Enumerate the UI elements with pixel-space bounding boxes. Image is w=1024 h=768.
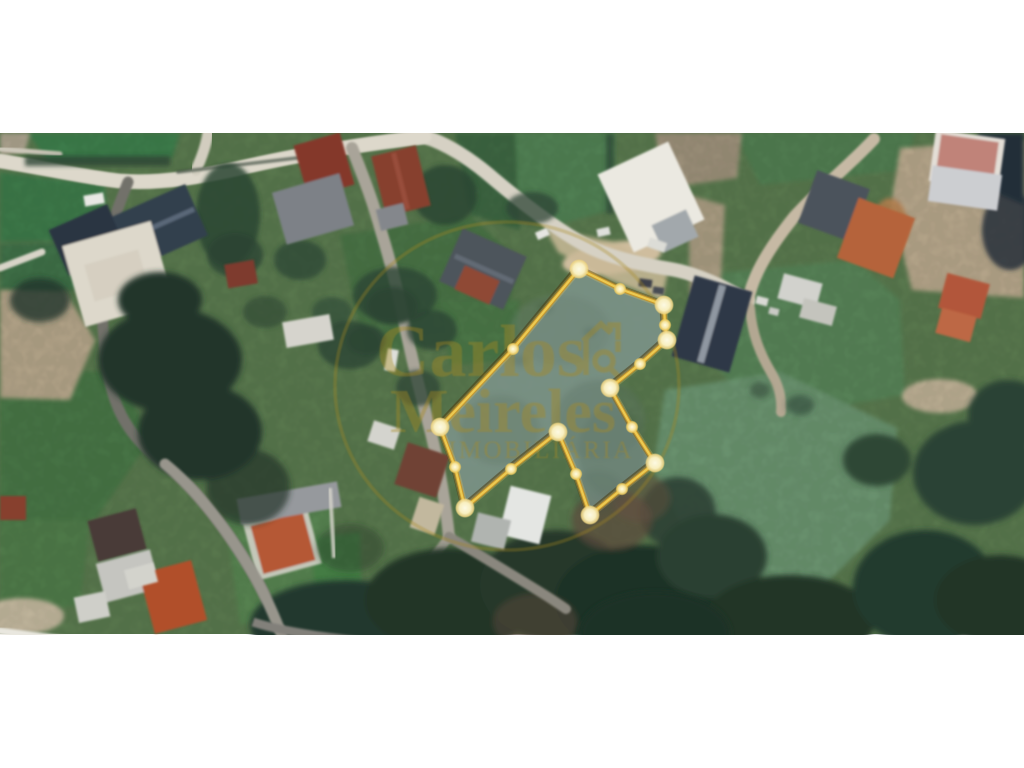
svg-text:Meireles: Meireles <box>390 378 616 446</box>
